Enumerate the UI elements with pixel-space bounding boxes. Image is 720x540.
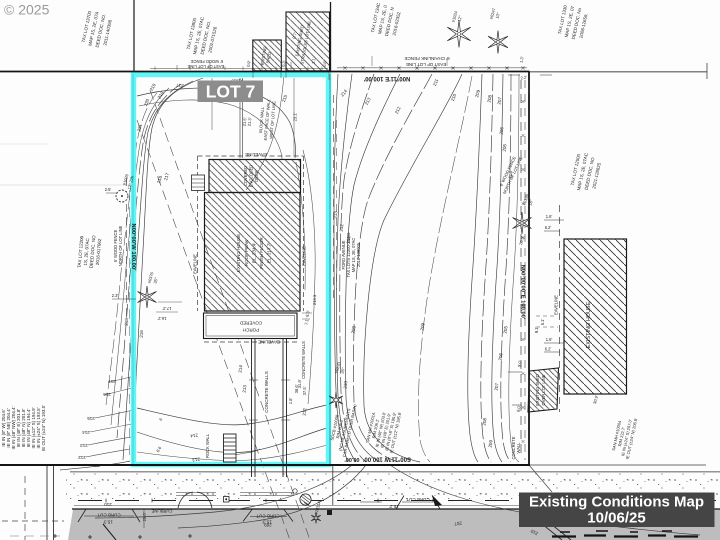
svg-text:LOT 7: LOT 7 <box>206 82 256 102</box>
svg-text:ROCK WALL: ROCK WALL <box>205 433 210 458</box>
svg-text:N00°11'E 100.00': N00°11'E 100.00' <box>363 75 410 81</box>
svg-text:213: 213 <box>242 384 248 392</box>
svg-text:215: 215 <box>87 416 95 421</box>
svg-text:213: 213 <box>192 457 200 463</box>
svg-text:210: 210 <box>104 502 112 507</box>
svg-text:15.2': 15.2' <box>389 504 399 509</box>
svg-text:© 2025: © 2025 <box>4 2 50 18</box>
svg-text:ENCLOSED: ENCLOSED <box>249 165 254 188</box>
svg-text:EAVELINE: EAVELINE <box>245 152 267 157</box>
svg-text:OVER LOT LINE: OVER LOT LINE <box>541 374 546 405</box>
svg-text:218: 218 <box>124 318 129 326</box>
svg-text:31.8': 31.8' <box>297 379 302 388</box>
svg-text:EAVELINE: EAVELINE <box>193 254 198 274</box>
svg-text:COVERED: COVERED <box>243 166 248 186</box>
svg-text:23.1': 23.1' <box>293 112 298 121</box>
svg-text:205: 205 <box>502 143 508 151</box>
svg-text:16.2': 16.2' <box>157 316 166 321</box>
svg-text:COVERED: COVERED <box>239 321 262 326</box>
svg-text:6.2': 6.2' <box>545 347 552 352</box>
svg-text:210: 210 <box>343 380 349 388</box>
svg-text:EAVELINE: EAVELINE <box>302 246 307 266</box>
svg-text:214: 214 <box>190 433 198 439</box>
svg-text:CURB CUT: CURB CUT <box>406 497 430 502</box>
svg-text:EL. 234.4': EL. 234.4' <box>252 243 257 263</box>
svg-text:ROOF PEAK: ROOF PEAK <box>244 240 249 266</box>
svg-text:S00°11'W 100.00': S00°11'W 100.00' <box>362 456 411 462</box>
svg-text:WALL: WALL <box>516 442 521 454</box>
svg-text:37.5': 37.5' <box>302 386 307 395</box>
svg-text:IE OUT (±24" N) 193.5': IE OUT (±24" N) 193.5' <box>41 405 46 451</box>
svg-text:CONCRETE WALLS: CONCRETE WALLS <box>264 371 269 413</box>
svg-text:2.5': 2.5' <box>105 187 112 192</box>
svg-text:212: 212 <box>78 455 86 460</box>
svg-text:CURB CUT: CURB CUT <box>97 513 121 518</box>
svg-text:207: 207 <box>454 521 462 527</box>
svg-text:206: 206 <box>499 126 505 134</box>
svg-text:EXISTING SHED: EXISTING SHED <box>535 374 540 406</box>
svg-text:6.2': 6.2' <box>545 225 552 230</box>
svg-text:N00°00'00"E 100.00': N00°00'00"E 100.00' <box>520 265 526 320</box>
svg-text:212: 212 <box>339 223 345 231</box>
svg-text:1.6': 1.6' <box>546 337 553 342</box>
svg-text:PORCH: PORCH <box>243 328 259 333</box>
svg-text:2016-138005: 2016-138005 <box>356 242 361 267</box>
svg-text:EXISTING HOUSE: EXISTING HOUSE <box>586 301 592 348</box>
svg-text:EAST OF LOT LINE: EAST OF LOT LINE <box>406 62 446 67</box>
svg-text:CURBLINE: CURBLINE <box>151 509 172 514</box>
svg-text:10/06/25: 10/06/25 <box>587 510 645 527</box>
svg-text:Existing Conditions Map: Existing Conditions Map <box>529 494 704 511</box>
svg-text:214: 214 <box>82 430 90 435</box>
svg-text:EAST OF LOT LINE: EAST OF LOT LINE <box>187 64 224 69</box>
svg-text:217: 217 <box>108 379 116 384</box>
svg-text:DECK: DECK <box>254 170 259 182</box>
svg-text:EAVELINE: EAVELINE <box>554 295 559 315</box>
svg-text:6' WOOD FENCE: 6' WOOD FENCE <box>191 59 224 64</box>
svg-text:17.3': 17.3' <box>162 306 171 311</box>
svg-text:1.6': 1.6' <box>546 214 553 219</box>
svg-text:5.1': 5.1' <box>540 319 545 326</box>
svg-text:1.8': 1.8' <box>288 397 293 404</box>
svg-text:N00°00'W 100.00': N00°00'W 100.00' <box>130 224 136 272</box>
svg-text:216: 216 <box>103 392 111 397</box>
svg-text:2.3': 2.3' <box>112 293 119 298</box>
svg-text:CONCRETE WALLS: CONCRETE WALLS <box>301 341 306 379</box>
svg-text:212: 212 <box>302 407 308 415</box>
svg-text:21.3': 21.3' <box>247 117 253 126</box>
svg-text:213: 213 <box>80 443 88 448</box>
svg-text:209: 209 <box>264 523 272 528</box>
svg-text:FINISH FLOOR: FINISH FLOOR <box>259 237 264 269</box>
svg-text:214: 214 <box>238 364 244 372</box>
svg-text:EXISTING HOUSE: EXISTING HOUSE <box>236 234 241 272</box>
svg-text:217: 217 <box>175 83 183 89</box>
svg-text:EL. 217.7': EL. 217.7' <box>267 243 272 263</box>
svg-text:9.1': 9.1' <box>534 327 539 334</box>
svg-text:CURB CUT: CURB CUT <box>256 514 280 519</box>
svg-text:15.3': 15.3' <box>103 520 113 525</box>
svg-text:NORTH OF LOT LINE: NORTH OF LOT LINE <box>118 225 123 266</box>
svg-text:EAVELINE: EAVELINE <box>258 340 280 345</box>
svg-text:6' CHAINLINK FENCE: 6' CHAINLINK FENCE <box>404 56 449 61</box>
svg-text:213.3: 213.3 <box>312 294 317 305</box>
svg-text:216: 216 <box>139 330 144 338</box>
